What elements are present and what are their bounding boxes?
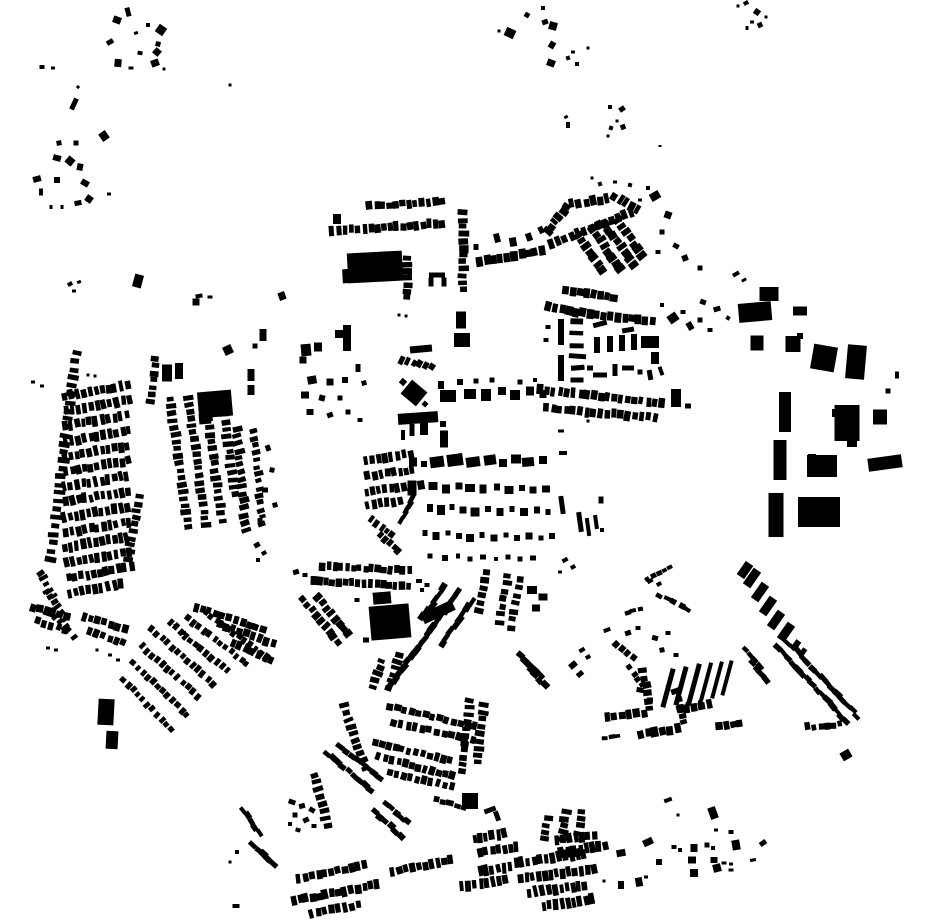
building-footprints-layer (0, 0, 930, 924)
figure-ground-map (0, 0, 930, 924)
